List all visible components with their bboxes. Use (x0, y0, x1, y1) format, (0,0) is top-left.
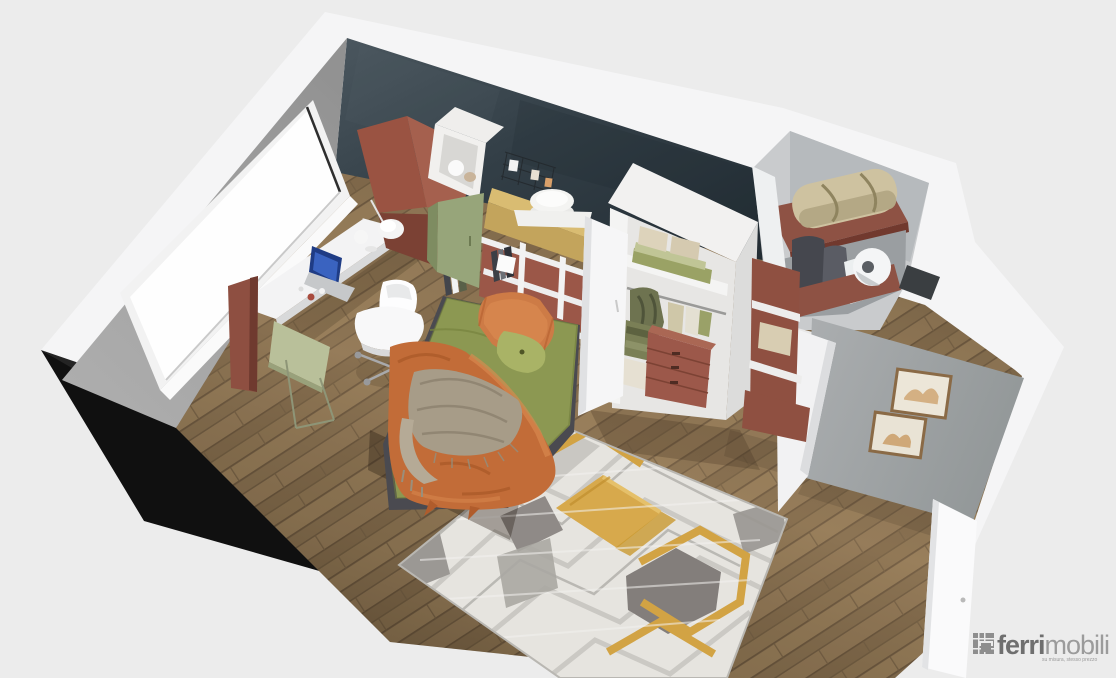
svg-text:ferrimobili: ferrimobili (997, 630, 1109, 660)
svg-text:su misura, stesso prezzo: su misura, stesso prezzo (1042, 657, 1098, 663)
